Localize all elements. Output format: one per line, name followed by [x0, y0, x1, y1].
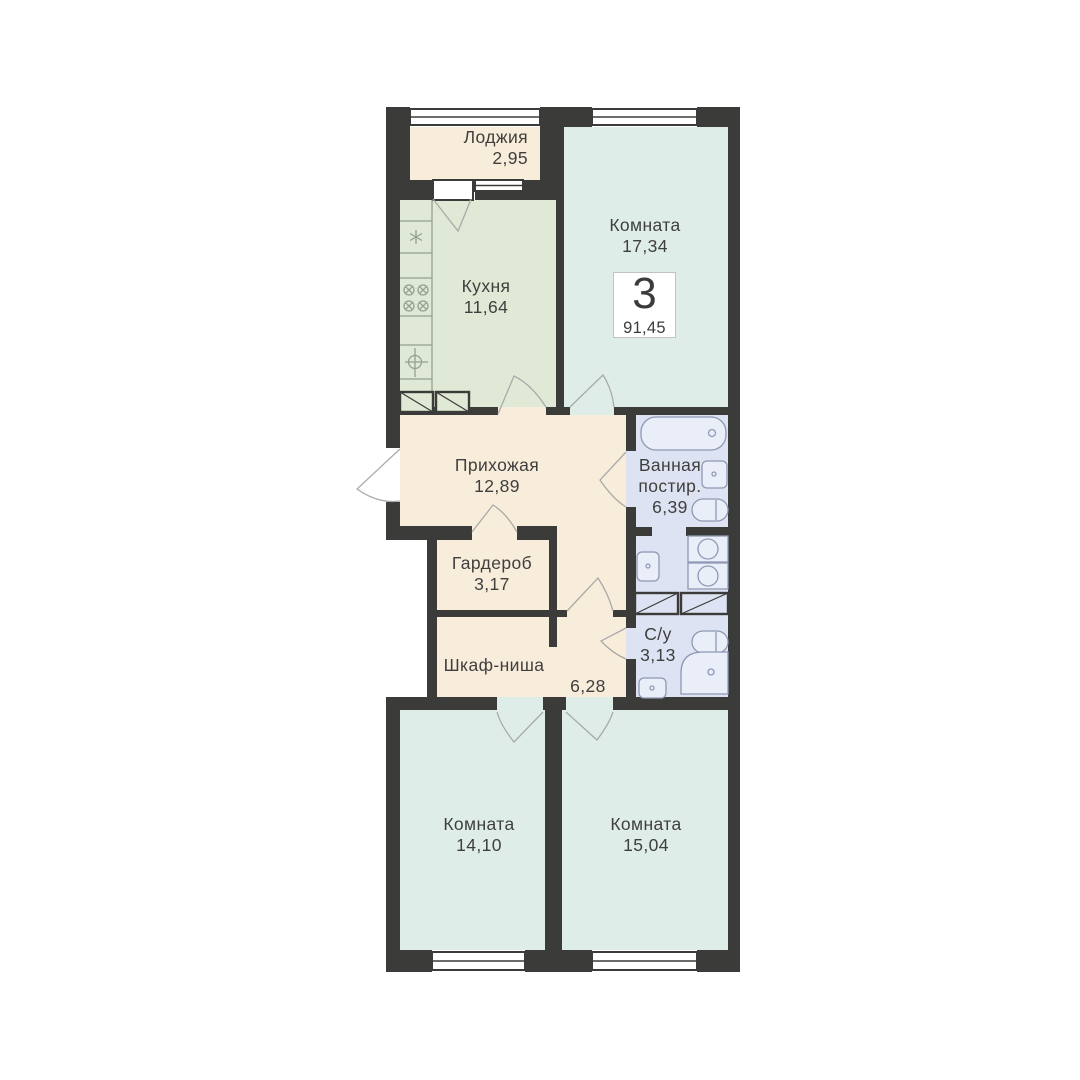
wall-segment [613, 697, 740, 710]
wall-segment [546, 407, 570, 415]
room1-door-opening [570, 407, 614, 415]
laundry-sink-icon [637, 552, 659, 581]
room2-window-icon [432, 952, 525, 970]
balcony-window-icon [475, 180, 523, 191]
room-label-living-room-2: Комната 14,10 [399, 814, 559, 856]
wall-segment [540, 127, 564, 180]
room-area-value: 15,04 [566, 835, 726, 856]
wall-segment [386, 107, 410, 180]
wall-segment [697, 950, 740, 972]
room-area-value: 14,10 [399, 835, 559, 856]
wall-segment [427, 610, 567, 617]
balcony-door-block [433, 180, 473, 200]
rooms-count: 3 [632, 273, 656, 315]
room-label-hallway: Прихожая 12,89 [417, 455, 577, 497]
room-label-wc: С/у 3,13 [618, 624, 698, 666]
room-area-value: 6,28 [548, 676, 628, 697]
room-area-value: 3,17 [412, 574, 572, 595]
room-name: Комната [565, 215, 725, 236]
room-name: Гардероб [412, 553, 572, 574]
room-area-value: 12,89 [417, 476, 577, 497]
wall-segment [386, 697, 497, 710]
wall-segment [636, 527, 652, 536]
wall-segment [386, 526, 472, 540]
room-label-living-room-3: Комната 15,04 [566, 814, 726, 856]
living-room-1-area [564, 127, 728, 407]
room-area-closet-niche: 6,28 [548, 676, 628, 697]
wall-segment [386, 180, 400, 448]
wc-sink-icon [639, 678, 666, 698]
room1-window-icon [592, 109, 697, 125]
kitchen-door-opening [498, 407, 546, 415]
floor-plan-drawing [0, 0, 1080, 1080]
wall-segment [400, 180, 433, 200]
niche-door-opening [567, 610, 613, 617]
room-area-value: 11,64 [406, 297, 566, 318]
wall-segment [626, 415, 636, 451]
room-name-line2: постир. [620, 476, 720, 497]
wall-segment [613, 610, 636, 617]
room-area-value: 2,95 [464, 148, 528, 169]
room-label-living-room-1: Комната 17,34 [565, 215, 725, 257]
room-name: Лоджия [464, 127, 528, 148]
wall-segment [614, 407, 728, 415]
room-name: Ванная [620, 455, 720, 476]
bathroom-vent-shaft-icon [635, 593, 728, 614]
wall-segment [525, 950, 592, 972]
room-label-loggia: Лоджия 2,95 [464, 127, 528, 169]
total-area-value: 91,45 [623, 320, 666, 337]
room-label-wardrobe: Гардероб 3,17 [412, 553, 572, 595]
loggia-window-icon [410, 109, 540, 125]
room-area-value: 3,13 [618, 645, 698, 666]
wall-segment [540, 107, 592, 127]
room-label-closet-niche: Шкаф-ниша [414, 655, 574, 676]
apartment-badge: 3 91,45 [613, 272, 676, 338]
room-name: Комната [399, 814, 559, 835]
wardrobe-door-opening [472, 526, 517, 540]
wall-segment [386, 697, 400, 972]
wall-segment [543, 697, 566, 710]
wall-segment [475, 191, 523, 200]
wall-segment [386, 950, 432, 972]
room-name: Шкаф-ниша [414, 655, 574, 676]
room-label-bathroom: Ванная постир. 6,39 [620, 455, 720, 518]
wall-segment [686, 527, 728, 536]
room-name: Прихожая [417, 455, 577, 476]
room3-window-icon [592, 952, 697, 970]
room-label-kitchen: Кухня 11,64 [406, 276, 566, 318]
room-name: Комната [566, 814, 726, 835]
room-area-value: 17,34 [565, 236, 725, 257]
wall-segment [549, 617, 557, 647]
washing-machine-icon [688, 536, 728, 562]
floor-plan: Лоджия 2,95 Кухня 11,64 Комната 17,34 3 … [0, 0, 1080, 1080]
bathtub-icon [641, 417, 726, 450]
room3-door-opening [566, 697, 613, 710]
room-area-value: 6,39 [620, 497, 720, 518]
room2-door-opening [497, 697, 543, 710]
room-name: С/у [618, 624, 698, 645]
room-name: Кухня [406, 276, 566, 297]
dryer-machine-icon [688, 563, 728, 589]
wall-segment [728, 107, 740, 972]
